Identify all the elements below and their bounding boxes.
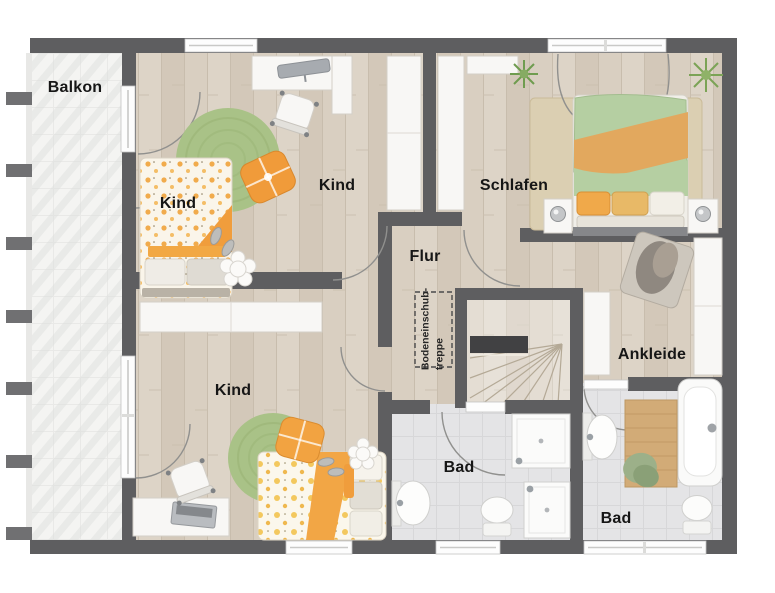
window — [436, 541, 500, 554]
cabinet — [467, 56, 518, 74]
room-label-hallway: Flur — [409, 248, 440, 266]
shower — [524, 482, 570, 538]
balcony-door — [121, 86, 135, 152]
wardrobe — [438, 56, 464, 210]
nightstand — [688, 199, 718, 233]
attic-hatch-label: Bodeneinschub- treppe — [419, 288, 446, 370]
room-label-child-bottom: Kind — [215, 382, 251, 400]
toilet — [682, 496, 712, 535]
staircase — [467, 300, 570, 404]
window — [185, 39, 257, 52]
washbasin — [583, 413, 617, 460]
room-label-bath-right: Bad — [601, 510, 632, 528]
room-label-child-bed: Kind — [160, 195, 196, 213]
bathtub — [678, 379, 722, 486]
door-leaf — [466, 402, 505, 412]
window — [584, 541, 706, 554]
double-bed — [573, 94, 688, 236]
balcony-deck — [26, 53, 122, 540]
washbasin — [392, 481, 430, 526]
attic-hatch-label-line1: Bodeneinschub- — [419, 288, 433, 370]
nightstand — [544, 199, 572, 233]
headboard — [573, 227, 688, 236]
room-label-child-top: Kind — [319, 177, 355, 195]
plant — [689, 58, 723, 92]
laptop — [171, 502, 217, 528]
floor-plan: Balkon Kind Kind Schlafen Flur Ankleide … — [0, 0, 775, 593]
balcony-door — [121, 356, 135, 478]
shower — [512, 414, 570, 468]
door-leaf — [584, 380, 628, 389]
room-label-dressing: Ankleide — [618, 346, 686, 364]
room-label-bath-center: Bad — [444, 459, 475, 477]
window — [286, 541, 352, 554]
attic-hatch-label-line2: treppe — [433, 288, 447, 370]
wardrobe — [584, 292, 610, 375]
room-label-bedroom: Schlafen — [480, 177, 548, 195]
stairwell-void — [470, 336, 528, 353]
toilet — [481, 497, 513, 536]
room-label-balcony: Balkon — [48, 79, 103, 97]
window — [548, 39, 666, 52]
floor-plan-drawing — [0, 0, 775, 593]
plant — [510, 60, 538, 88]
